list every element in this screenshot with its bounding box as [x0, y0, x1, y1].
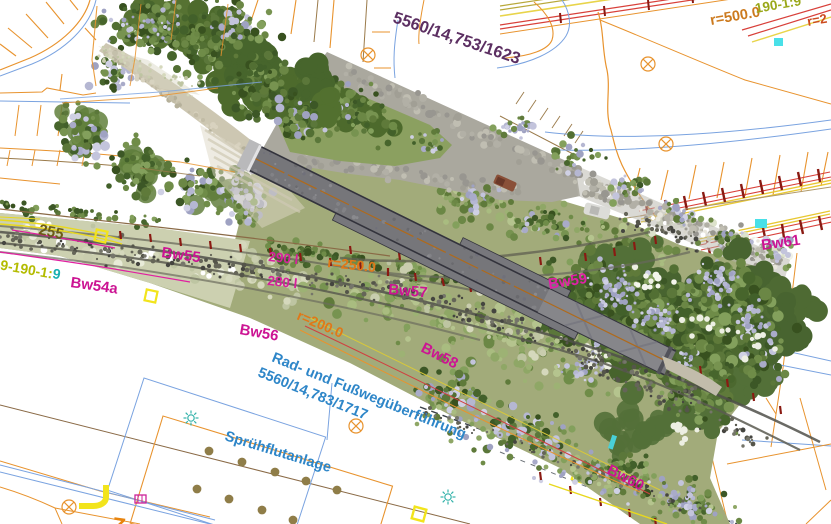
svg-text:Z: Z [110, 512, 127, 524]
